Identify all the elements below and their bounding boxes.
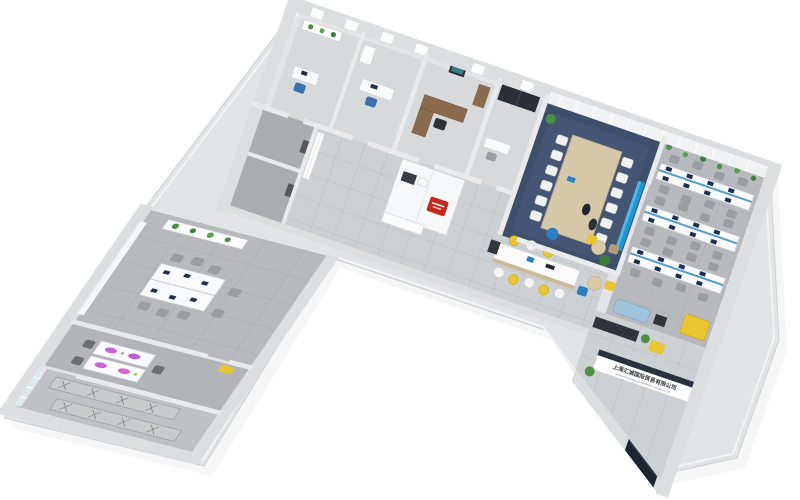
- office-floorplan-render: 上海汇城国际贸易有限公司 SHANGHAI HUICHENG INTERNATI…: [0, 0, 800, 500]
- building-render: 上海汇城国际贸易有限公司 SHANGHAI HUICHENG INTERNATI…: [0, 0, 800, 500]
